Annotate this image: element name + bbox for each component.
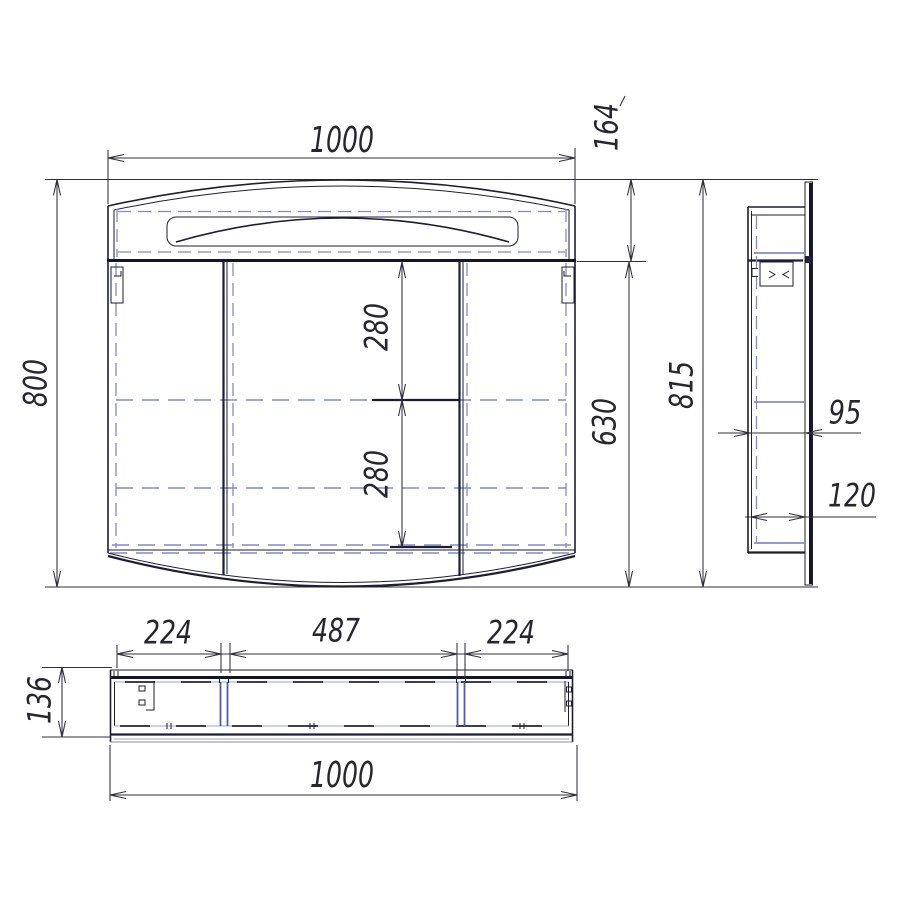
dim-label-shelf-upper: 280 (358, 303, 396, 351)
dim-label-depth-total: 120 (828, 477, 876, 515)
dim-label-segment-center: 487 (312, 612, 361, 650)
dim-label-front-height: 800 (17, 359, 55, 407)
dim-label-top-section: 164 (588, 103, 626, 151)
mirror-cabinet-drawing: 1000 164 630 800 280 280 815 (0, 0, 900, 900)
dim-plan-width: 1000 (110, 745, 577, 801)
extension-lines (45, 180, 818, 588)
door-dividers (224, 261, 464, 576)
light-fixture-box (752, 262, 793, 286)
front-hidden-lines (110, 263, 573, 553)
dim-label-segment-left: 224 (144, 614, 192, 652)
dim-label-body-height: 630 (586, 398, 624, 446)
dim-label-depth-body: 95 (829, 394, 862, 432)
dim-top-section: 164 (577, 96, 646, 262)
dim-body-height: 630 (586, 262, 633, 587)
side-view (748, 182, 813, 585)
hinge-left (111, 267, 123, 303)
dim-plan-segments: 224 487 224 (117, 612, 568, 678)
technical-drawing-sheet: 1000 164 630 800 280 280 815 (0, 0, 900, 900)
dim-label-shelf-lower: 280 (358, 450, 396, 498)
dim-plan-depth: 136 (21, 667, 112, 737)
arch-outer (108, 180, 575, 206)
arch-inner (114, 186, 569, 210)
bottom-curve-inner (108, 553, 575, 583)
dim-shelf-upper: 280 (358, 262, 406, 400)
wall-bracket-left (139, 681, 154, 710)
dim-label-front-width: 1000 (310, 120, 374, 161)
mirror-panel (805, 182, 813, 585)
plan-dividers (220, 677, 466, 726)
dim-depth-body: 95 (718, 394, 862, 437)
bottom-curve-outer (108, 556, 575, 587)
dim-label-plan-width: 1000 (310, 755, 374, 796)
front-view (107, 180, 576, 587)
light-cover-arc (176, 218, 509, 242)
dim-side-height: 815 (663, 180, 707, 588)
hinge-right (562, 267, 574, 303)
dim-label-side-height: 815 (663, 361, 701, 409)
dim-label-segment-right: 224 (487, 614, 535, 652)
top-view (110, 670, 573, 742)
dim-shelf-lower: 280 (358, 400, 406, 547)
dim-label-plan-depth: 136 (21, 676, 59, 724)
dim-front-width: 1000 (108, 120, 575, 204)
dim-front-height: 800 (17, 180, 61, 588)
